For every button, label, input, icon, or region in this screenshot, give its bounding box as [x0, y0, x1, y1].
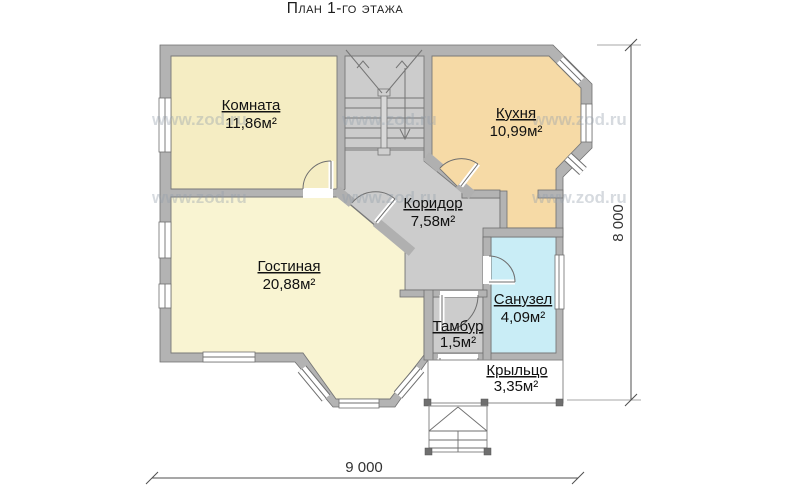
watermark-text: www.zod.ru [341, 110, 437, 129]
porch-post [556, 399, 563, 406]
room-vestibule-label: Тамбур [433, 318, 484, 335]
window [339, 399, 379, 408]
watermark-text: www.zod.ru [151, 188, 247, 207]
floor-plan-drawing: План 1-го этажа [0, 0, 795, 496]
door-gap-vestibule [440, 291, 478, 297]
dimension-vertical-label: 8 000 [610, 204, 627, 242]
dimension-horizontal-label: 9 000 [345, 459, 383, 476]
room-porch-label: Крыльцо [486, 362, 547, 379]
steps-post [425, 448, 432, 455]
watermark-text: www.zod.ru [531, 110, 627, 129]
room-corridor-area: 7,58м² [411, 213, 456, 230]
dimension-bottom: 9 000 [146, 459, 584, 484]
watermark-text: www.zod.ru [531, 188, 627, 207]
wall-bathroom-left [483, 237, 491, 360]
porch-post [424, 399, 431, 406]
room-kitchen-label: Кухня [496, 105, 536, 122]
room-corridor-label: Коридор [403, 195, 462, 212]
door-gap-bedroom [303, 188, 333, 198]
stair-newel-bottom [378, 148, 390, 155]
room-living-area: 20,88м² [263, 276, 316, 293]
room-vestibule-area: 1,5м² [440, 334, 476, 351]
room-bedroom-label: Комната [222, 97, 281, 114]
room-bathroom-area: 4,09м² [501, 309, 546, 326]
porch-post [481, 399, 488, 406]
room-living-label: Гостиная [258, 258, 321, 275]
floor-plan-page: План 1-го этажа [0, 0, 795, 496]
room-bathroom-label: Санузел [494, 291, 552, 308]
window [555, 255, 564, 309]
room-porch-area: 3,35м² [494, 378, 539, 395]
room-kitchen-area: 10,99м² [490, 123, 543, 140]
wall-bathroom-top [483, 228, 563, 237]
room-bedroom-area: 11,86м² [225, 115, 277, 132]
steps-post [484, 448, 491, 455]
page-title: План 1-го этажа [287, 0, 404, 17]
